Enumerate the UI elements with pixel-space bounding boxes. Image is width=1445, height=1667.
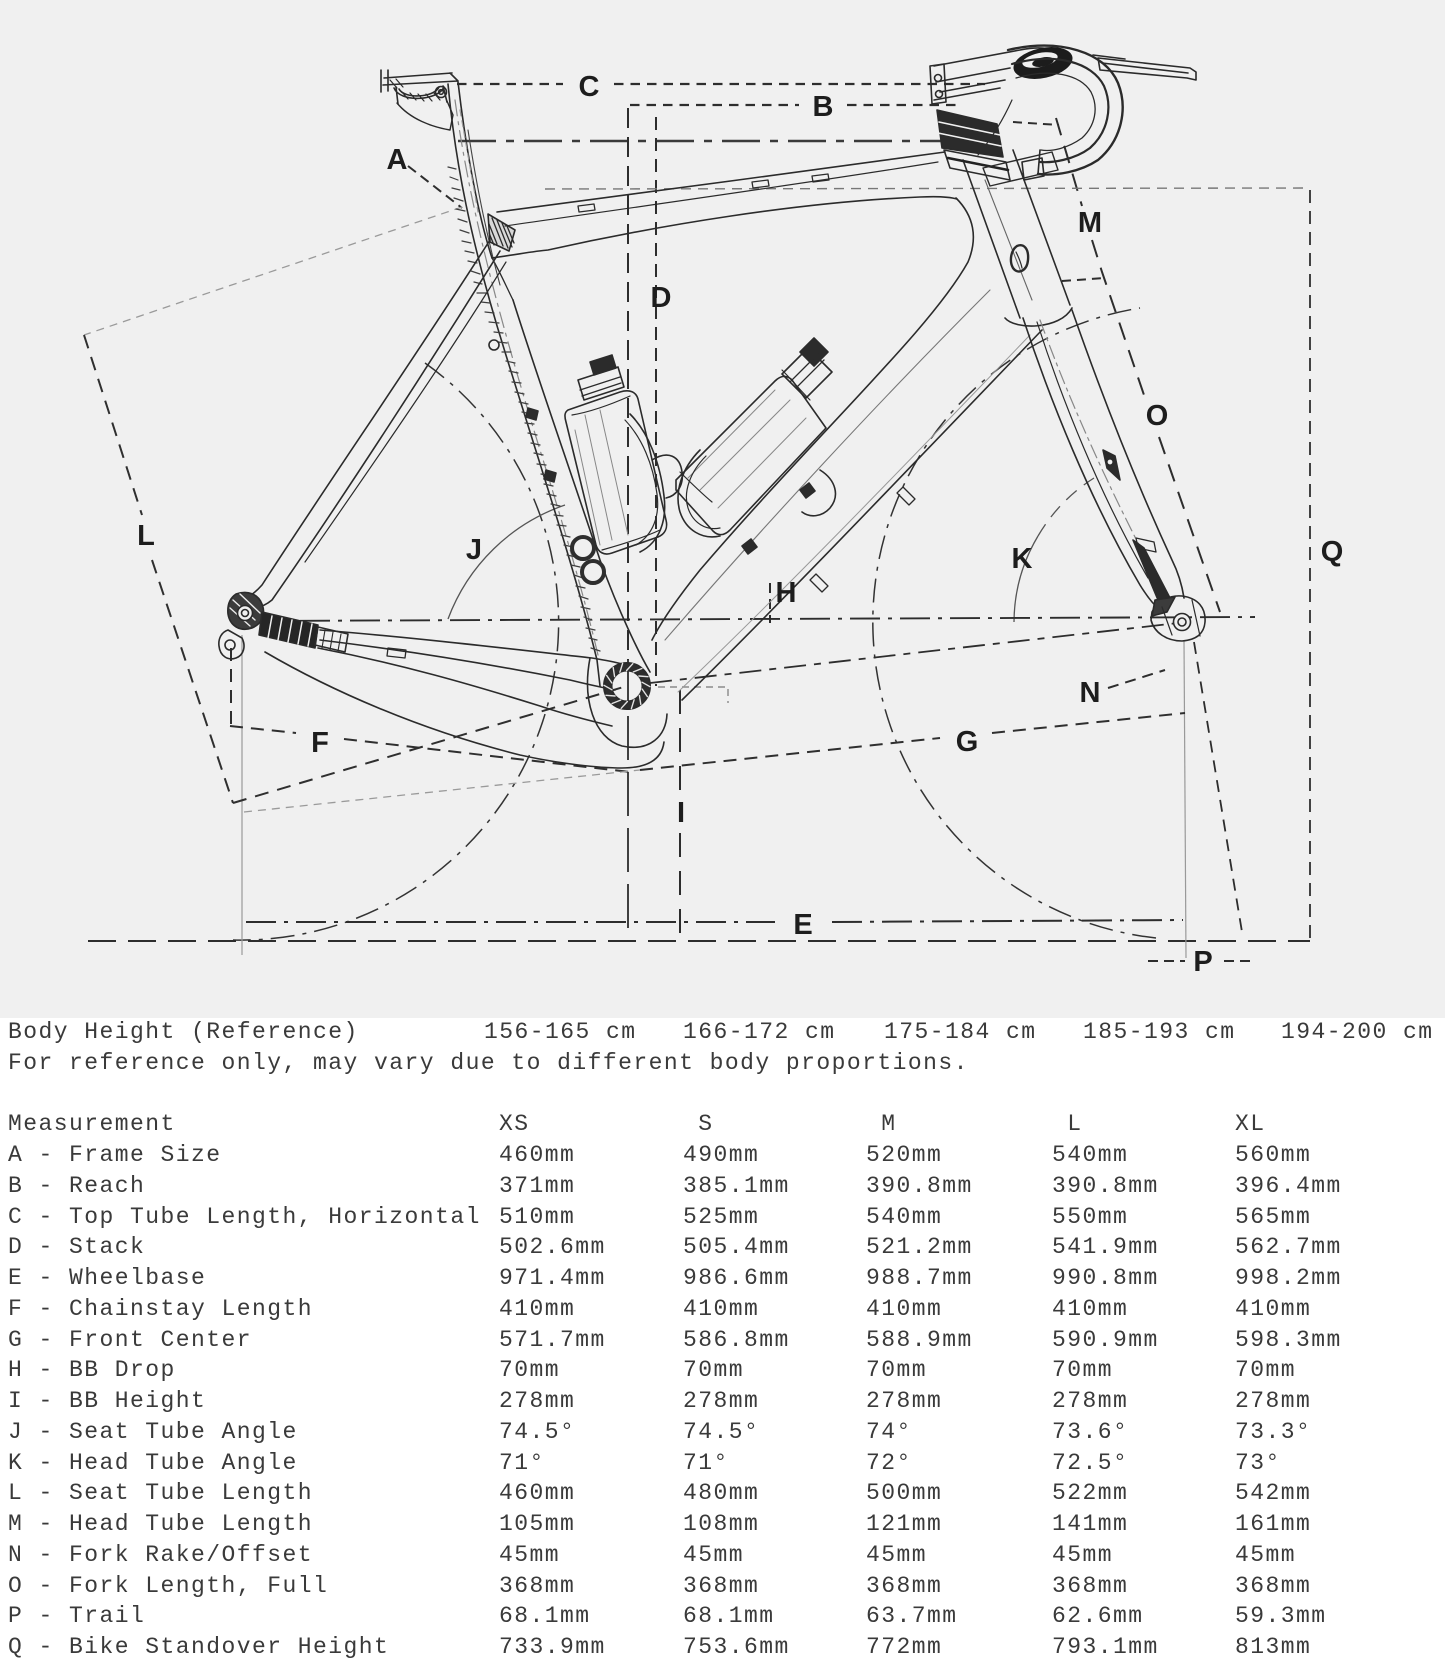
svg-text:M: M [1078, 207, 1102, 239]
svg-text:O: O [1146, 400, 1169, 432]
svg-text:K: K [1012, 543, 1033, 575]
svg-text:J: J [466, 534, 482, 566]
svg-text:D: D [651, 282, 672, 314]
svg-text:I: I [677, 797, 685, 829]
svg-text:G: G [956, 726, 979, 758]
svg-text:L: L [137, 520, 155, 552]
svg-text:N: N [1080, 677, 1101, 709]
svg-text:E: E [793, 909, 812, 941]
svg-text:Q: Q [1321, 536, 1344, 568]
svg-text:B: B [813, 91, 834, 123]
svg-text:C: C [579, 71, 600, 103]
svg-text:F: F [311, 727, 329, 759]
svg-text:A: A [387, 144, 408, 176]
svg-text:P: P [1193, 946, 1212, 978]
svg-text:H: H [776, 577, 797, 609]
